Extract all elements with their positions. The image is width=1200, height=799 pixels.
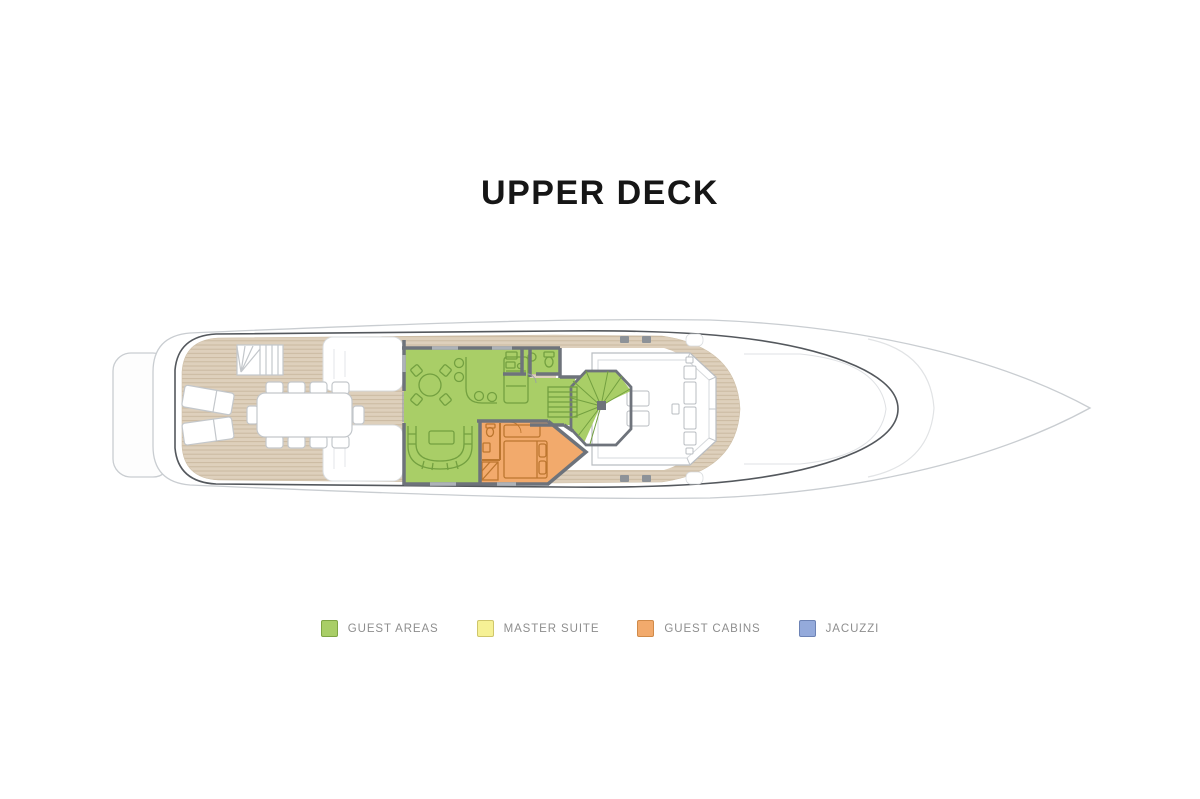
- deck-plan: [0, 0, 1200, 799]
- legend: GUEST AREAS MASTER SUITE GUEST CABINS JA…: [0, 620, 1200, 637]
- master-suite-swatch: [477, 620, 494, 637]
- legend-label: GUEST CABINS: [664, 623, 760, 635]
- deck-notch-top: [686, 334, 703, 346]
- legend-item-jacuzzi: JACUZZI: [799, 620, 880, 637]
- legend-label: MASTER SUITE: [504, 623, 600, 635]
- deck-notch-bottom: [686, 472, 703, 484]
- aft-staircase: [237, 345, 283, 375]
- legend-item-guest-areas: GUEST AREAS: [321, 620, 439, 637]
- legend-label: GUEST AREAS: [348, 623, 439, 635]
- page: UPPER DECK: [0, 0, 1200, 799]
- legend-item-master-suite: MASTER SUITE: [477, 620, 600, 637]
- jacuzzi-swatch: [799, 620, 816, 637]
- guest-areas-swatch: [321, 620, 338, 637]
- legend-label: JACUZZI: [826, 623, 880, 635]
- dining-table: [257, 393, 352, 437]
- deck-plan-svg: [0, 0, 1200, 799]
- guest-cabins-swatch: [637, 620, 654, 637]
- spiral-center-post: [597, 401, 606, 410]
- legend-item-guest-cabins: GUEST CABINS: [637, 620, 760, 637]
